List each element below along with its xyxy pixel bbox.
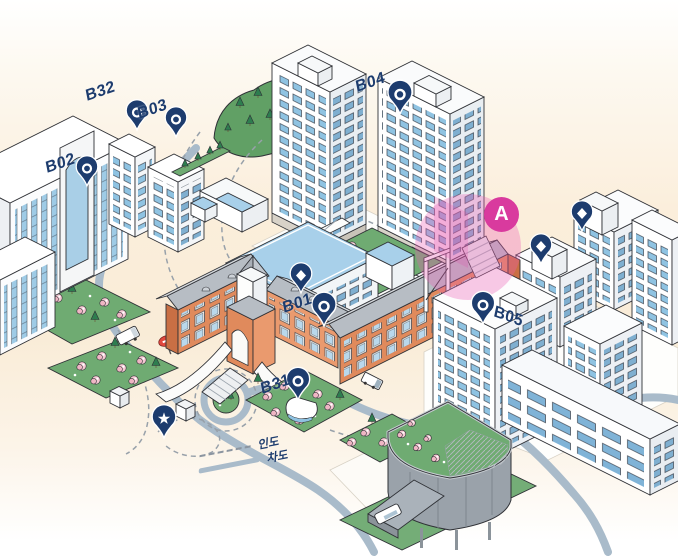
star-pin-plaza[interactable] [152,405,176,438]
campus-map: B32 B03 B02 B04 B01 B31 B05 A 인도 차도 [0,0,678,558]
map-artwork [0,45,678,552]
truck [360,372,383,391]
area-marker-a[interactable]: A [484,197,519,232]
